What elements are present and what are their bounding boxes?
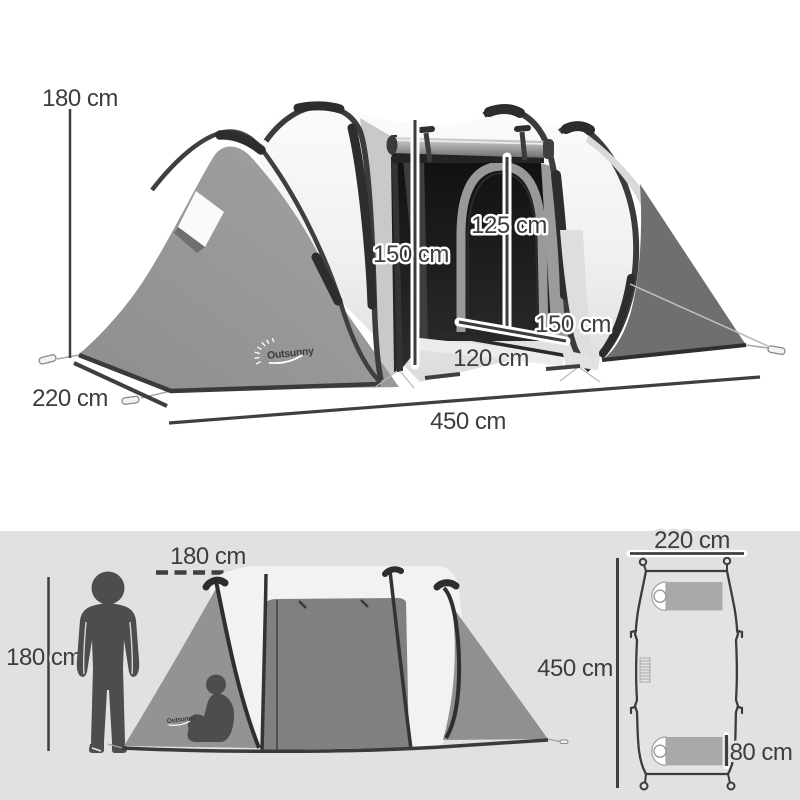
svg-text:125 cm: 125 cm (471, 212, 547, 239)
svg-text:220 cm: 220 cm (32, 385, 108, 412)
svg-text:180 cm: 180 cm (6, 644, 82, 671)
svg-text:150 cm: 150 cm (535, 311, 611, 338)
svg-text:80 cm: 80 cm (730, 739, 793, 766)
svg-text:120 cm: 120 cm (453, 345, 529, 372)
svg-text:450 cm: 450 cm (430, 408, 506, 435)
svg-text:450 cm: 450 cm (537, 655, 613, 682)
svg-text:150 cm: 150 cm (373, 241, 449, 268)
svg-text:180 cm: 180 cm (170, 543, 246, 570)
svg-text:180 cm: 180 cm (42, 85, 118, 112)
svg-text:220 cm: 220 cm (654, 527, 730, 554)
